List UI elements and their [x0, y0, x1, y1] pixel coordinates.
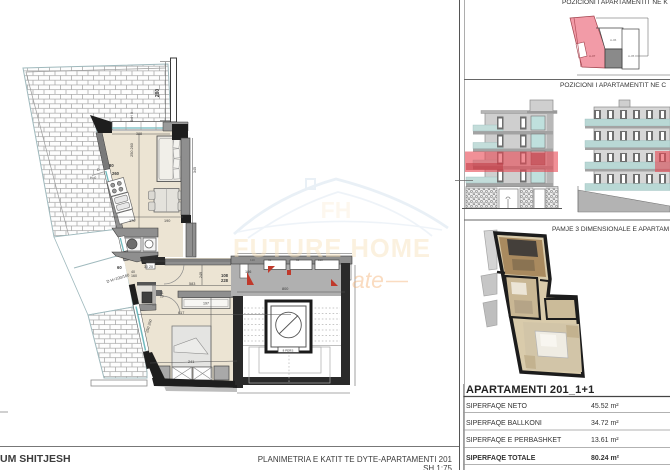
svg-text:UM SHITJESH: UM SHITJESH [0, 453, 71, 465]
svg-text:80.24 m²: 80.24 m² [591, 455, 620, 462]
svg-text:D: D [97, 168, 100, 172]
svg-text:0=H 0: 0=H 0 [130, 112, 134, 122]
svg-text:A-06: A-06 [610, 38, 617, 42]
svg-text:A-07: A-07 [589, 54, 596, 58]
svg-text:106: 106 [245, 270, 251, 274]
svg-text:PLANIMETRIA E KATIT TE DYTE-AP: PLANIMETRIA E KATIT TE DYTE-APARTAMENTI … [258, 455, 453, 464]
svg-text:160: 160 [131, 274, 137, 278]
svg-text:249: 249 [199, 272, 203, 278]
svg-text:280: 280 [155, 89, 161, 98]
svg-text:POZICIONI I APARTAMENTIT NE K: POZICIONI I APARTAMENTIT NE K [562, 0, 668, 6]
svg-text:FUTURE HOME: FUTURE HOME [233, 235, 431, 263]
svg-text:POZICIONI I APARTAMENTIT NE C: POZICIONI I APARTAMENTIT NE C [560, 82, 666, 89]
svg-text:190: 190 [164, 219, 170, 223]
svg-text:170: 170 [129, 219, 135, 223]
svg-text:SIPERFAQE BALLKONI: SIPERFAQE BALLKONI [466, 420, 542, 427]
svg-text:583: 583 [189, 282, 195, 286]
svg-text:13.61 m²: 13.61 m² [591, 437, 619, 444]
svg-text:FH: FH [321, 197, 352, 223]
svg-text:250 260: 250 260 [130, 143, 134, 157]
svg-text:197: 197 [203, 302, 209, 306]
svg-text:388: 388 [136, 132, 142, 136]
svg-text:60: 60 [117, 265, 122, 270]
svg-text:A-05: A-05 [628, 54, 635, 58]
svg-text:80: 80 [109, 163, 114, 168]
svg-text:8 PERS: 8 PERS [283, 349, 294, 353]
svg-text:SH 1:75: SH 1:75 [423, 464, 452, 470]
svg-text:617: 617 [178, 311, 184, 315]
svg-text:H=0: H=0 [90, 176, 96, 180]
svg-text:241: 241 [188, 360, 194, 364]
svg-text:PAMJE 3 DIMENSIONALE E APARTAM: PAMJE 3 DIMENSIONALE E APARTAM [552, 226, 669, 233]
svg-text:APARTAMENTI 201_1+1: APARTAMENTI 201_1+1 [466, 384, 594, 396]
svg-text:SIPERFAQE E PERBASHKET: SIPERFAQE E PERBASHKET [466, 437, 562, 444]
svg-text:228: 228 [221, 278, 229, 283]
svg-text:34.72 m²: 34.72 m² [591, 420, 619, 427]
svg-text:SIPERFAQE NETO: SIPERFAQE NETO [466, 403, 527, 410]
svg-text:345: 345 [193, 167, 197, 173]
svg-text:30 20: 30 20 [144, 265, 153, 269]
svg-text:260: 260 [112, 171, 120, 176]
svg-text:ate: ate [352, 267, 384, 293]
svg-text:800: 800 [282, 287, 288, 291]
svg-text:45.52 m²: 45.52 m² [591, 403, 619, 410]
svg-text:SIPERFAQE TOTALE: SIPERFAQE TOTALE [466, 455, 536, 462]
svg-text:10: 10 [160, 295, 164, 299]
